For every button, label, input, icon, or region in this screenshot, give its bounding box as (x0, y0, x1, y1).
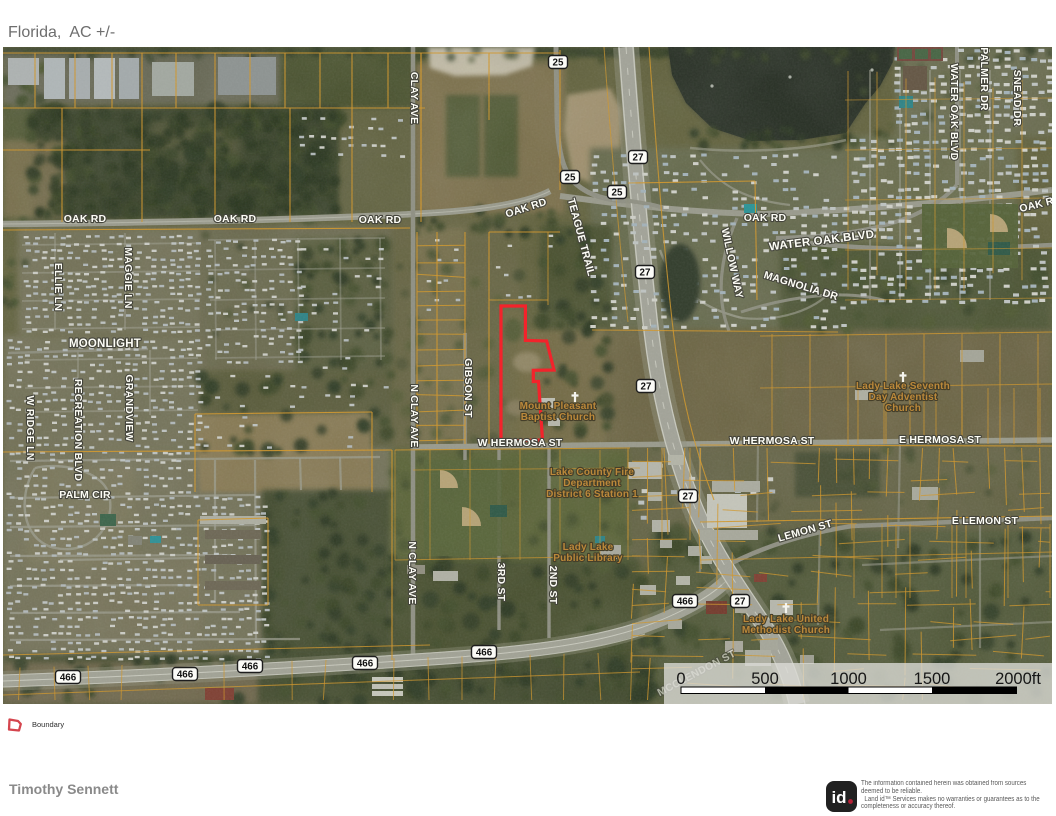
svg-text:2ND ST: 2ND ST (547, 566, 559, 605)
svg-text:PALMER DR: PALMER DR (978, 47, 990, 111)
svg-text:Methodist Church: Methodist Church (742, 625, 830, 636)
svg-text:500: 500 (751, 670, 779, 688)
svg-text:466: 466 (357, 659, 374, 670)
svg-text:27: 27 (633, 153, 644, 164)
svg-text:RECREATION BLVD: RECREATION BLVD (72, 379, 84, 482)
svg-text:466: 466 (242, 662, 259, 673)
svg-text:27: 27 (641, 382, 652, 393)
svg-text:27: 27 (683, 492, 694, 503)
svg-text:1000: 1000 (830, 670, 867, 688)
svg-text:25: 25 (553, 58, 564, 69)
svg-text:MAGGIE LN: MAGGIE LN (122, 247, 134, 308)
svg-text:E HERMOSA ST: E HERMOSA ST (899, 434, 981, 446)
svg-text:1500: 1500 (914, 670, 951, 688)
svg-text:OAK RD: OAK RD (359, 214, 402, 226)
svg-text:OAK RD: OAK RD (744, 212, 787, 224)
svg-text:W RIDGE LN: W RIDGE LN (24, 396, 36, 461)
svg-text:N CLAY AVE: N CLAY AVE (408, 384, 420, 447)
svg-text:Lake County Fire: Lake County Fire (550, 467, 635, 478)
svg-text:PALM CIR: PALM CIR (59, 489, 111, 501)
svg-text:District 6 Station 1: District 6 Station 1 (546, 489, 638, 500)
svg-text:25: 25 (612, 188, 623, 199)
svg-text:CLAY AVE: CLAY AVE (408, 72, 420, 124)
svg-text:0: 0 (676, 670, 685, 688)
svg-text:27: 27 (640, 268, 651, 279)
svg-text:466: 466 (476, 648, 493, 659)
svg-text:W HERMOSA ST: W HERMOSA ST (730, 435, 815, 447)
svg-text:Lady Lake: Lady Lake (563, 542, 614, 553)
svg-text:Public Library: Public Library (553, 553, 623, 564)
svg-text:MOONLIGHT: MOONLIGHT (69, 338, 141, 350)
svg-text:Department: Department (563, 478, 621, 489)
svg-text:GRANDVIEW: GRANDVIEW (123, 374, 135, 441)
svg-text:Church: Church (885, 403, 921, 414)
svg-text:W HERMOSA ST: W HERMOSA ST (478, 437, 563, 449)
svg-text:466: 466 (677, 597, 694, 608)
svg-text:SNEAD DR: SNEAD DR (1011, 70, 1023, 127)
svg-text:E LEMON ST: E LEMON ST (952, 515, 1019, 527)
svg-text:3RD ST: 3RD ST (495, 563, 507, 602)
svg-text:466: 466 (177, 670, 194, 681)
svg-text:ELLIE LN: ELLIE LN (52, 263, 64, 311)
svg-text:Lady Lake United: Lady Lake United (743, 614, 829, 625)
svg-text:WATER OAK BLVD: WATER OAK BLVD (948, 64, 960, 161)
svg-text:466: 466 (60, 673, 77, 684)
svg-text:Baptist Church: Baptist Church (521, 412, 595, 423)
svg-text:Day Adventist: Day Adventist (869, 392, 938, 403)
svg-text:Lady Lake Seventh: Lady Lake Seventh (856, 381, 950, 392)
svg-text:25: 25 (565, 173, 576, 184)
svg-text:Mount Pleasant: Mount Pleasant (520, 401, 597, 412)
svg-text:GIBSON ST: GIBSON ST (462, 358, 474, 418)
svg-text:27: 27 (735, 597, 746, 608)
svg-text:id: id (831, 788, 846, 807)
svg-text:OAK RD: OAK RD (214, 213, 257, 225)
svg-text:N CLAY AVE: N CLAY AVE (406, 541, 418, 604)
svg-text:OAK RD: OAK RD (64, 213, 107, 225)
svg-text:2000ft: 2000ft (995, 670, 1041, 688)
